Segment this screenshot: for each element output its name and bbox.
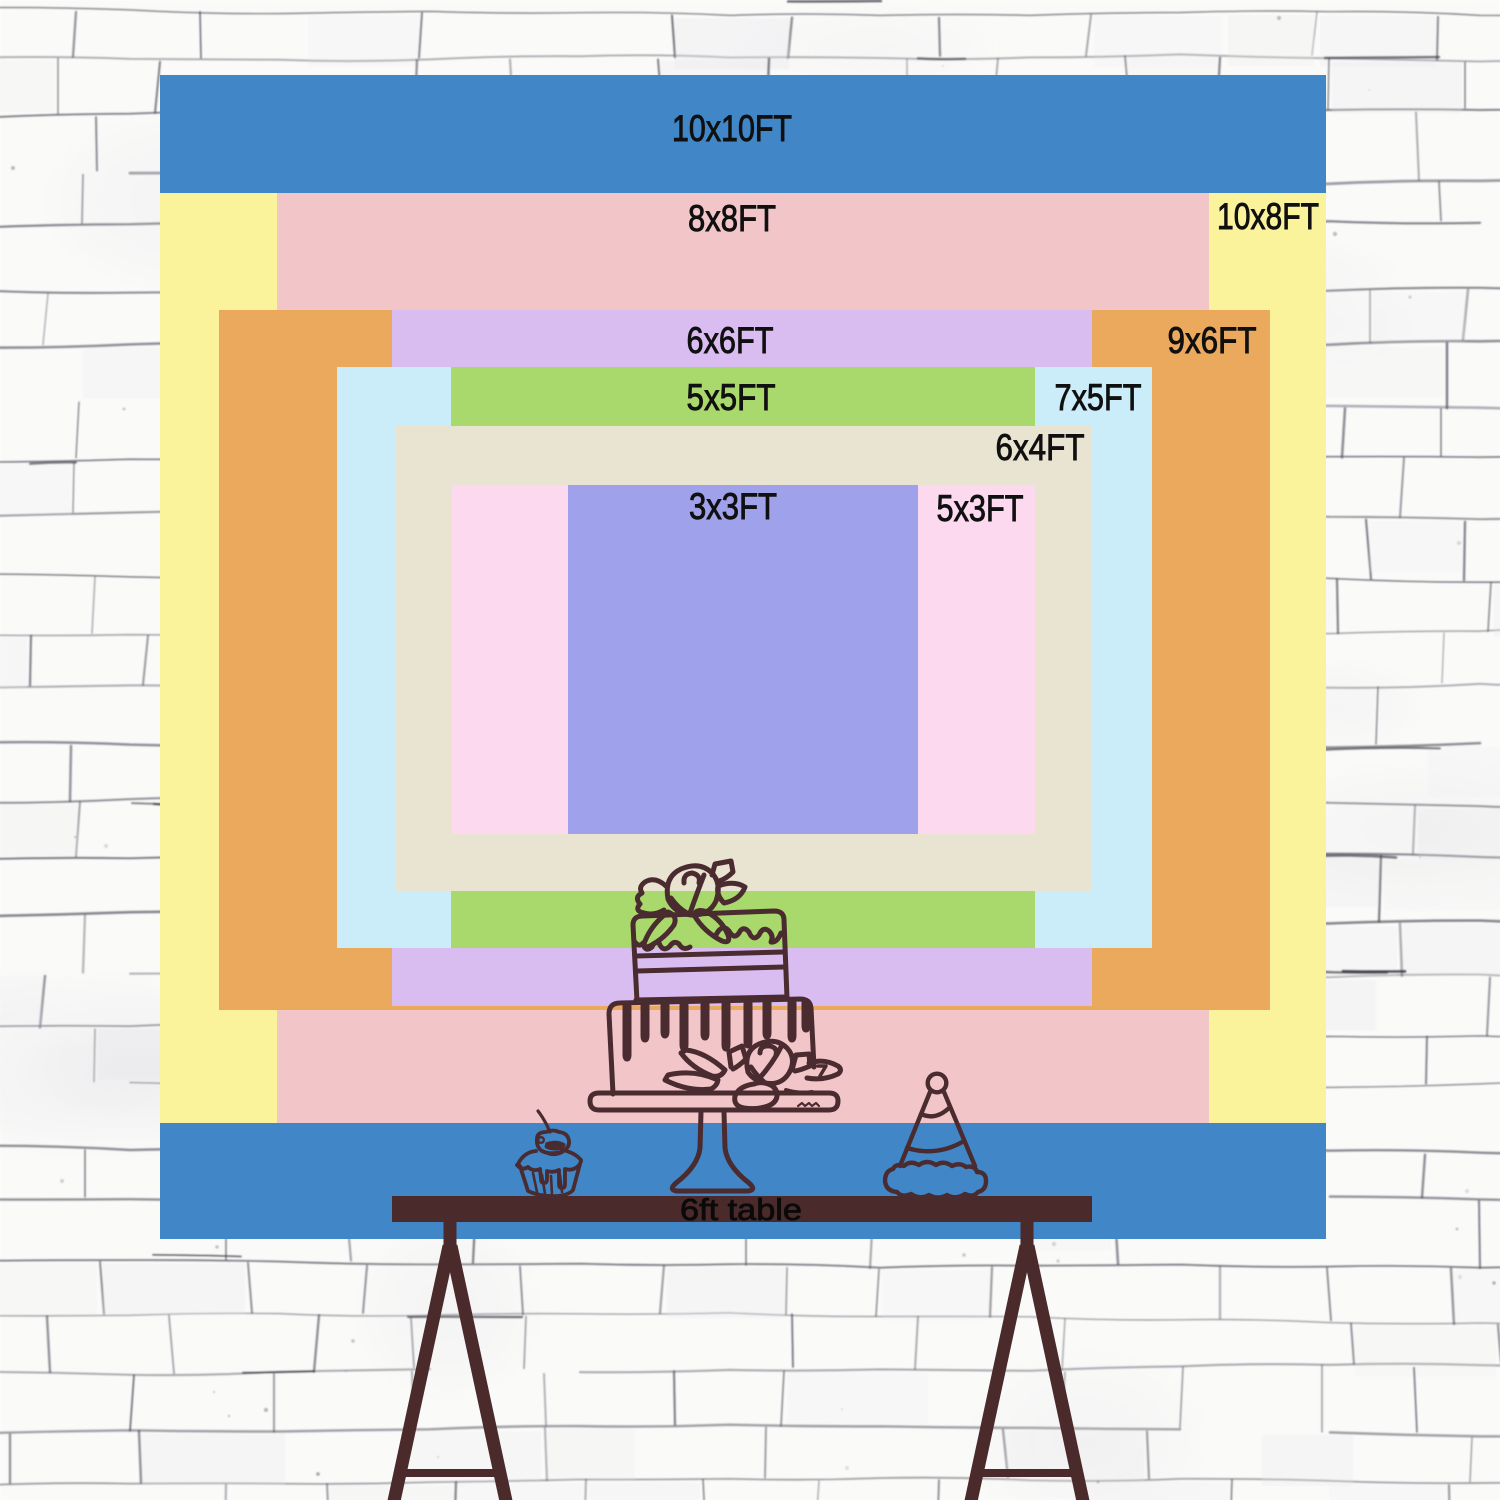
- svg-text:8x8FT: 8x8FT: [688, 198, 776, 239]
- svg-text:7x5FT: 7x5FT: [1055, 377, 1142, 418]
- svg-text:6x4FT: 6x4FT: [996, 427, 1085, 468]
- svg-text:9x6FT: 9x6FT: [1168, 320, 1257, 361]
- svg-text:5x3FT: 5x3FT: [937, 488, 1024, 529]
- svg-text:10x10FT: 10x10FT: [672, 108, 792, 149]
- svg-text:5x5FT: 5x5FT: [687, 377, 776, 418]
- svg-text:10x8FT: 10x8FT: [1217, 196, 1319, 237]
- svg-text:6ft table: 6ft table: [680, 1192, 802, 1227]
- svg-text:3x3FT: 3x3FT: [689, 486, 777, 527]
- svg-text:6x6FT: 6x6FT: [687, 320, 774, 361]
